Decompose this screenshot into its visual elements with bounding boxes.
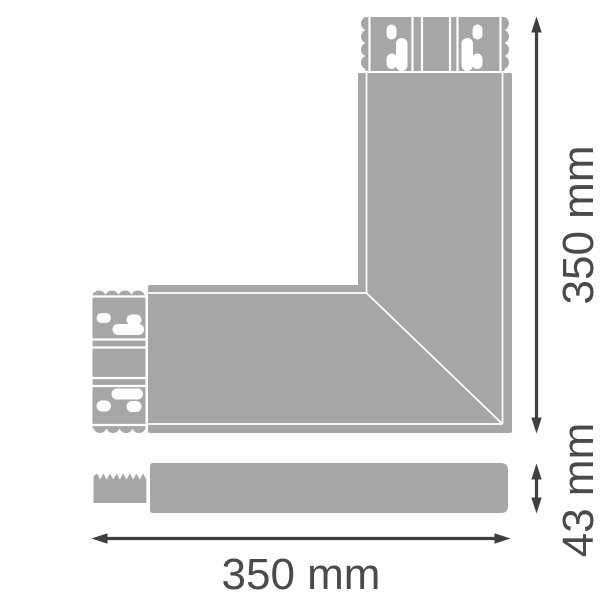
mounting-slot — [97, 313, 112, 323]
mounting-slot — [396, 38, 408, 71]
mounting-slot — [387, 54, 398, 70]
dimension-label-horizontal: 350 mm — [222, 550, 381, 599]
mounting-slot — [127, 315, 142, 326]
dimension-diagram: 350 mm 43 mm 350 mm — [0, 0, 600, 600]
dim-thickness-43: 43 mm — [531, 423, 600, 557]
side-view — [94, 463, 509, 513]
mounting-slot — [113, 324, 145, 335]
top-connector-end — [361, 17, 509, 71]
arrowhead-right — [495, 533, 511, 543]
arrowhead-up — [531, 464, 541, 480]
mounting-slot — [387, 25, 397, 40]
corner-body — [148, 73, 512, 433]
side-view-profile-bar — [150, 463, 508, 513]
arrowhead-left — [92, 533, 108, 543]
arrowhead-down — [531, 418, 541, 434]
arrowhead-up — [531, 17, 541, 33]
plan-view — [93, 17, 513, 433]
dim-horizontal-350: 350 mm — [92, 533, 511, 599]
mounting-slot — [473, 25, 483, 40]
diagram-canvas: 350 mm 43 mm 350 mm — [0, 0, 600, 600]
dim-vertical-350: 350 mm — [531, 17, 600, 434]
mounting-slot — [97, 401, 112, 412]
mounting-slot — [462, 38, 474, 71]
side-view-connector-teeth — [94, 474, 147, 504]
mounting-slot — [472, 54, 483, 70]
mounting-slot — [112, 389, 144, 400]
mounting-slot — [127, 401, 142, 412]
dimension-label-thickness: 43 mm — [554, 423, 600, 557]
arrowhead-down — [531, 498, 541, 514]
dimension-label-vertical: 350 mm — [554, 146, 600, 305]
